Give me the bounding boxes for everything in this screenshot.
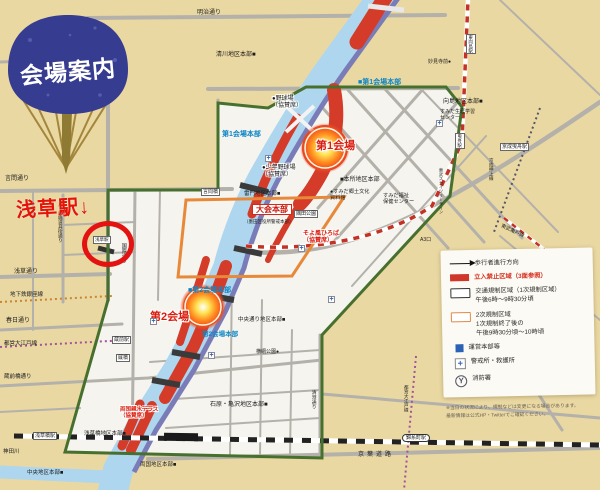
fire-icon xyxy=(455,375,467,387)
map-label: ■本所地区本部 xyxy=(340,177,380,184)
map-label: 東武スカイツリーライン xyxy=(438,168,443,214)
map-label: ●すみだ郷土文化 資料館 xyxy=(330,189,369,201)
legend-item: 運営本部等 xyxy=(451,340,587,352)
map-label: 第2会場本部 xyxy=(202,331,238,339)
map-label: 浅草橋地区本部■ xyxy=(84,431,126,437)
map-label: ■第2会場本部 xyxy=(188,287,231,295)
map-label: 向島地区本部■ xyxy=(443,99,483,106)
map-label: 第1会場 xyxy=(316,140,355,153)
legend-panel: 歩行者進行方向立入禁止区域（3面参照）交通規制区域（1次規制区域） 午後6時〜9… xyxy=(440,247,595,397)
map-label: 曳舟駅 xyxy=(455,133,465,149)
legend-item-label: 運営本部等 xyxy=(468,342,500,352)
legend-item-label: 消防署 xyxy=(472,374,491,384)
map-label: 京葉道路 xyxy=(358,452,394,459)
map-label: 浅草通り xyxy=(14,269,38,276)
map-label: （墨田区役所警戒本部） xyxy=(244,219,294,224)
map-label: 言問橋 xyxy=(201,188,220,196)
box-icon xyxy=(450,288,470,298)
map-label: 春日通り xyxy=(6,318,30,325)
map-label: 言問通り xyxy=(5,176,29,183)
map-label: 清澄通り xyxy=(310,390,316,409)
map-label: 第1会場本部 xyxy=(222,131,261,139)
map-label: 浅草橋駅 xyxy=(33,432,57,440)
aid-station-icon xyxy=(265,155,272,162)
legend-item: 警戒所・救護所 xyxy=(452,355,588,370)
aid-station-icon xyxy=(328,296,335,303)
asakusa-station-circle-annotation xyxy=(82,221,134,267)
map-label: 錦糸町駅 xyxy=(402,434,430,442)
map-label: 明治通り xyxy=(197,10,221,17)
map-label: 大会本部 xyxy=(252,204,292,215)
map-label: 清川地区本部■ xyxy=(216,52,256,59)
legend-item-label: 歩行者進行方向 xyxy=(475,258,519,268)
map-label: すみだ福祉 保健センター xyxy=(383,193,414,205)
map-label: 隅田公園 xyxy=(294,210,318,218)
map-label: 東向島駅 xyxy=(466,34,476,54)
map-label: 石原・亀沢地区本部■ xyxy=(210,402,268,409)
aid-station-icon xyxy=(208,352,215,359)
legend-item-label: 交通規制区域（1次規制区域） 午後6時〜9時30分頃 xyxy=(475,285,561,305)
plus-icon xyxy=(455,358,466,369)
map-label: 厩橋 xyxy=(116,354,130,362)
map-label: 京成押上線 xyxy=(489,158,494,181)
aid-station-icon xyxy=(436,120,443,127)
legend-item: 交通規制区域（1次規制区域） 午後6時〜9時30分頃 xyxy=(450,285,586,306)
legend-item: 立入禁止区域（3面参照） xyxy=(450,271,586,283)
legend-item: 消防署 xyxy=(452,372,588,388)
legend-item-label: 2次規制区域 1次規制終了後の 午後9時30分頃〜10時頃 xyxy=(476,309,544,338)
map-label: A3口 xyxy=(420,238,431,244)
legend-item: 2次規制区域 1次規制終了後の 午後9時30分頃〜10時頃 xyxy=(451,308,588,338)
map-label: ■第1会場本部 xyxy=(358,79,401,87)
legend-item: 歩行者進行方向 xyxy=(450,257,586,269)
map-label: 横網公園● xyxy=(256,350,279,356)
map-label: 両国親水テラス （協賛席） xyxy=(120,407,158,420)
map-label: 地下鉄銀座線 xyxy=(10,292,43,298)
redbar-icon xyxy=(450,274,469,281)
map-label: 中央通り地区本部■ xyxy=(238,317,285,323)
venue-map-page: 会場案内 明治通り言問通り浅草通り地下鉄銀座線春日通り都営大江戸線蔵前橋通り神田… xyxy=(0,0,600,490)
legend-item-label: 警戒所・救護所 xyxy=(471,356,515,366)
map-label: 東武亀戸線 xyxy=(500,224,525,240)
legend-footnote: ※当日の状況により、規制などは変更になる場合があります。 最新情報は公式HP・T… xyxy=(446,403,594,422)
map-label: そよ風ひろば （協賛席） xyxy=(303,231,339,245)
bluesq-icon xyxy=(455,344,463,352)
map-label: 都営大江戸線 xyxy=(404,385,409,412)
map-label: 蔵前橋通り xyxy=(4,374,32,380)
obox-icon xyxy=(451,311,471,321)
map-label: 雷門地区本部■ xyxy=(244,191,280,197)
map-label: 神田川 xyxy=(3,449,20,455)
map-label: 中央地区本部■ xyxy=(27,470,63,476)
aid-station-icon xyxy=(150,318,157,325)
legend-item-label: 立入禁止区域（3面参照） xyxy=(474,272,547,283)
map-label: すみだ生涯学習 センター xyxy=(440,110,475,122)
arrow-icon xyxy=(450,263,470,264)
map-label: ●少年野球場 （協賛席） xyxy=(262,165,296,179)
map-label: 都営大江戸線 xyxy=(4,341,37,347)
asakusa-station-callout: 浅草駅↓ xyxy=(15,190,90,223)
map-label: ●野球場 （協賛席） xyxy=(272,96,302,110)
map-label: 妙見寺前● xyxy=(428,60,451,66)
map-label: 蔵前駅 xyxy=(112,336,131,344)
map-label: 京成曳舟駅 xyxy=(500,143,529,151)
aid-station-icon xyxy=(298,245,305,252)
map-label: 両国地区本部■ xyxy=(140,462,176,468)
